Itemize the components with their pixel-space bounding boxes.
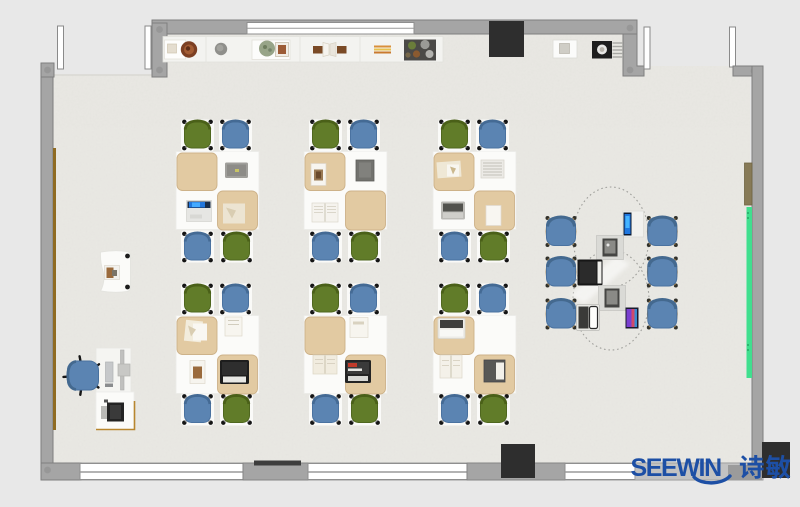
svg-text:SEEWIN: SEEWIN [631,454,722,482]
